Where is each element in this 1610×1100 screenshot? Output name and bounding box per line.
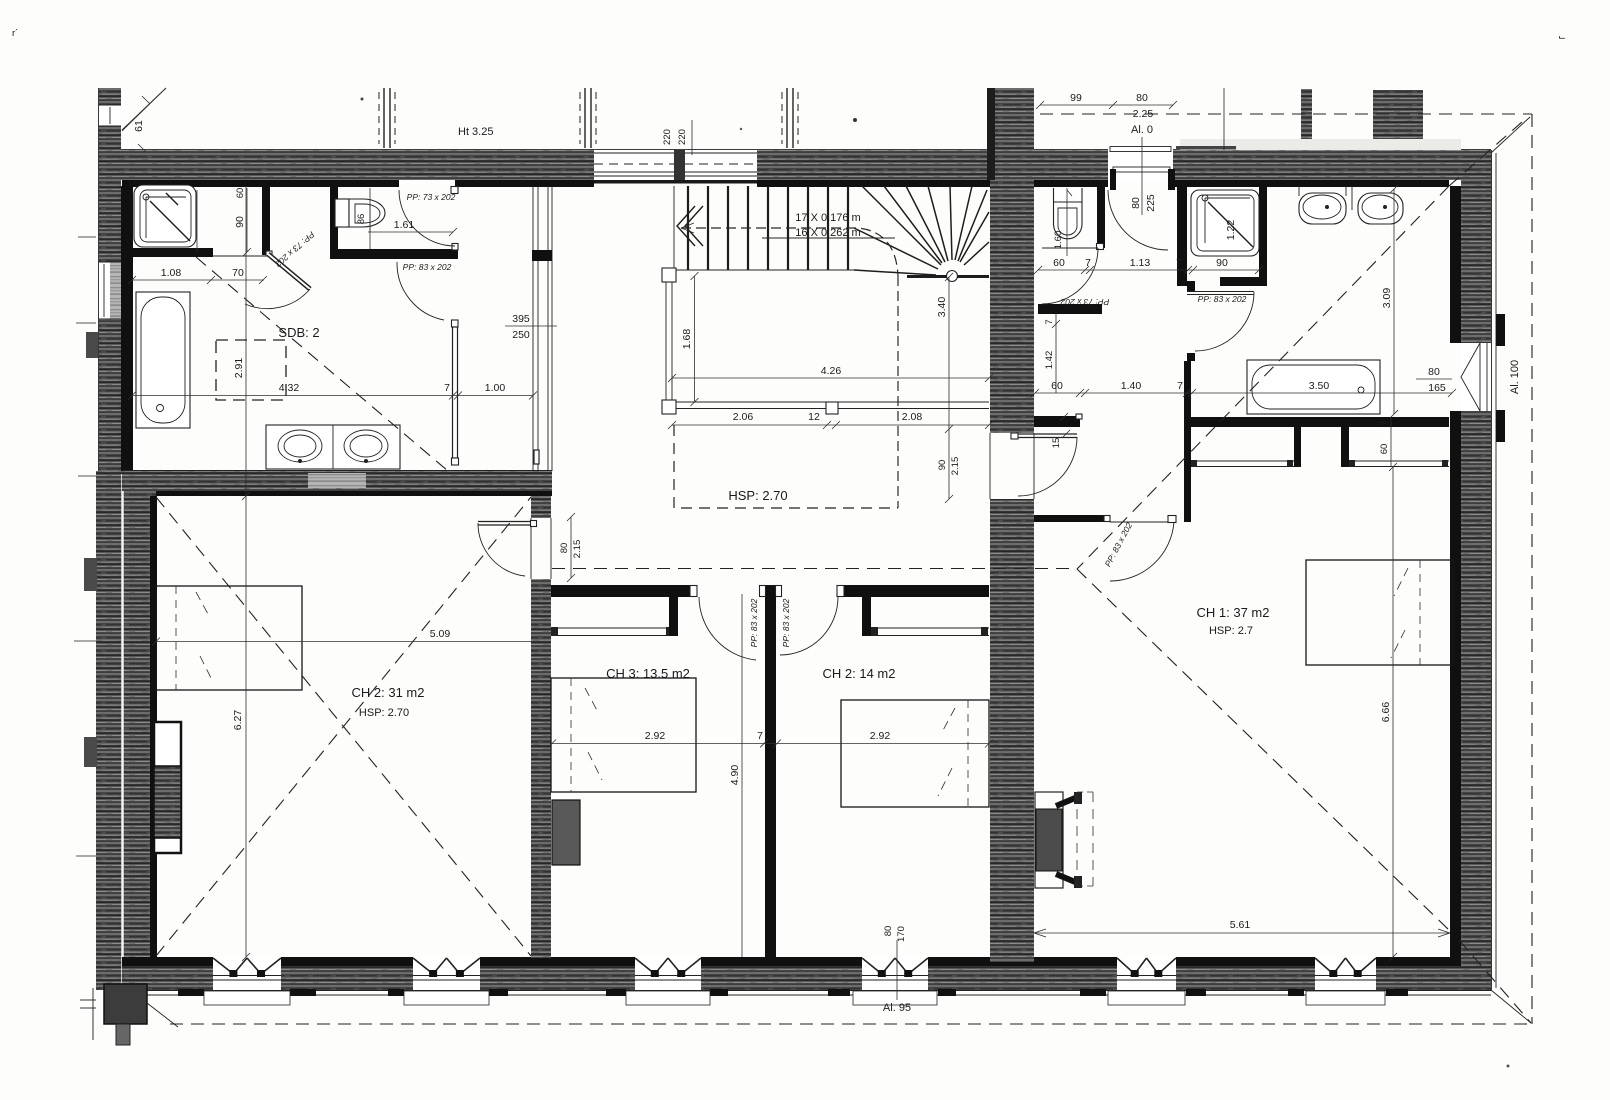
svg-text:2.25: 2.25 xyxy=(1133,108,1154,120)
svg-text:6.66: 6.66 xyxy=(1380,702,1392,723)
svg-text:CH 2: 14 m2: CH 2: 14 m2 xyxy=(823,666,896,681)
svg-text:220: 220 xyxy=(662,129,673,145)
svg-text:SDB: 2: SDB: 2 xyxy=(278,325,319,340)
svg-text:5.09: 5.09 xyxy=(430,628,451,640)
svg-text:PP: 83 x 202: PP: 83 x 202 xyxy=(781,598,791,647)
svg-text:7: 7 xyxy=(1085,257,1091,269)
svg-text:⌙: ⌙ xyxy=(1558,32,1566,43)
svg-text:7: 7 xyxy=(757,730,763,742)
svg-text:86: 86 xyxy=(356,214,367,225)
svg-text:HSP: 2.7: HSP: 2.7 xyxy=(1209,625,1253,637)
svg-text:4.26: 4.26 xyxy=(821,365,842,377)
svg-text:3.40: 3.40 xyxy=(936,297,948,318)
svg-text:80: 80 xyxy=(883,926,894,937)
svg-text:60: 60 xyxy=(1053,257,1065,269)
svg-text:250: 250 xyxy=(512,329,530,341)
svg-text:1.61: 1.61 xyxy=(394,219,415,231)
svg-text:4.32: 4.32 xyxy=(279,382,300,394)
svg-text:5.61: 5.61 xyxy=(1230,919,1251,931)
svg-text:PP: 83 x 202: PP: 83 x 202 xyxy=(1198,294,1247,304)
svg-text:61: 61 xyxy=(133,120,145,132)
svg-text:1.13: 1.13 xyxy=(1130,257,1151,269)
svg-text:2.92: 2.92 xyxy=(870,730,891,742)
svg-text:60: 60 xyxy=(1051,380,1063,392)
svg-text:CH 1: 37 m2: CH 1: 37 m2 xyxy=(1197,605,1270,620)
svg-text:60: 60 xyxy=(235,188,246,199)
svg-text:2.15: 2.15 xyxy=(950,457,961,476)
svg-text:395: 395 xyxy=(512,313,530,325)
svg-text:2.08: 2.08 xyxy=(902,411,923,423)
svg-text:PP: 73 x 202: PP: 73 x 202 xyxy=(407,192,456,202)
svg-text:r´: r´ xyxy=(12,28,18,39)
svg-text:1.68: 1.68 xyxy=(681,329,693,350)
svg-text:2.91: 2.91 xyxy=(233,358,245,379)
svg-text:15: 15 xyxy=(1051,438,1062,449)
svg-text:1.42: 1.42 xyxy=(1044,351,1055,370)
svg-text:80: 80 xyxy=(1136,92,1148,104)
svg-text:2.15: 2.15 xyxy=(572,540,583,559)
svg-text:PP: 83 x 202: PP: 83 x 202 xyxy=(749,598,759,647)
svg-text:Ht 3.25: Ht 3.25 xyxy=(458,126,493,138)
svg-text:CH 3: 13.5 m2: CH 3: 13.5 m2 xyxy=(606,666,690,681)
svg-text:12: 12 xyxy=(808,411,820,423)
svg-text:HSP: 2.70: HSP: 2.70 xyxy=(359,707,409,719)
svg-text:60: 60 xyxy=(1379,444,1390,455)
svg-text:1.08: 1.08 xyxy=(161,267,182,279)
svg-text:80: 80 xyxy=(1428,366,1440,378)
svg-text:7: 7 xyxy=(1177,380,1183,392)
svg-text:2.06: 2.06 xyxy=(733,411,754,423)
svg-text:HSP: 2.70: HSP: 2.70 xyxy=(728,488,787,503)
svg-text:PP: 83 x 202: PP: 83 x 202 xyxy=(403,262,452,272)
svg-text:70: 70 xyxy=(232,267,244,279)
svg-text:90: 90 xyxy=(1216,257,1228,269)
svg-text:170: 170 xyxy=(896,926,907,942)
svg-text:1.60: 1.60 xyxy=(1053,231,1064,250)
svg-text:7: 7 xyxy=(444,382,450,394)
svg-text:3.50: 3.50 xyxy=(1309,380,1330,392)
svg-text:16 X 0.262 m: 16 X 0.262 m xyxy=(795,227,860,239)
svg-text:165: 165 xyxy=(1428,382,1446,394)
svg-text:Al. 100: Al. 100 xyxy=(1509,360,1521,394)
svg-text:1.00: 1.00 xyxy=(485,382,506,394)
svg-text:220: 220 xyxy=(677,129,688,145)
svg-text:99: 99 xyxy=(1070,92,1082,104)
svg-text:7: 7 xyxy=(1379,420,1390,425)
svg-text:7: 7 xyxy=(1176,257,1182,269)
svg-text:80: 80 xyxy=(559,543,570,554)
svg-text:2.92: 2.92 xyxy=(645,730,666,742)
svg-text:90: 90 xyxy=(937,460,948,471)
svg-text:CH 2: 31 m2: CH 2: 31 m2 xyxy=(352,685,425,700)
svg-text:17 X 0.176 m: 17 X 0.176 m xyxy=(795,212,860,224)
svg-text:80: 80 xyxy=(1130,197,1142,209)
svg-text:225: 225 xyxy=(1145,194,1157,212)
svg-text:1.22: 1.22 xyxy=(1225,220,1237,241)
svg-text:1.40: 1.40 xyxy=(1121,380,1142,392)
svg-text:90: 90 xyxy=(234,216,246,228)
svg-text:3.09: 3.09 xyxy=(1381,288,1393,309)
svg-text:7: 7 xyxy=(1044,319,1055,324)
svg-text:4.90: 4.90 xyxy=(729,765,741,786)
svg-text:6.27: 6.27 xyxy=(232,710,244,731)
svg-text:PP: 73 x 202: PP: 73 x 202 xyxy=(1060,297,1109,307)
svg-text:Al. 0: Al. 0 xyxy=(1131,124,1153,136)
svg-text:Al. 95: Al. 95 xyxy=(883,1002,911,1014)
